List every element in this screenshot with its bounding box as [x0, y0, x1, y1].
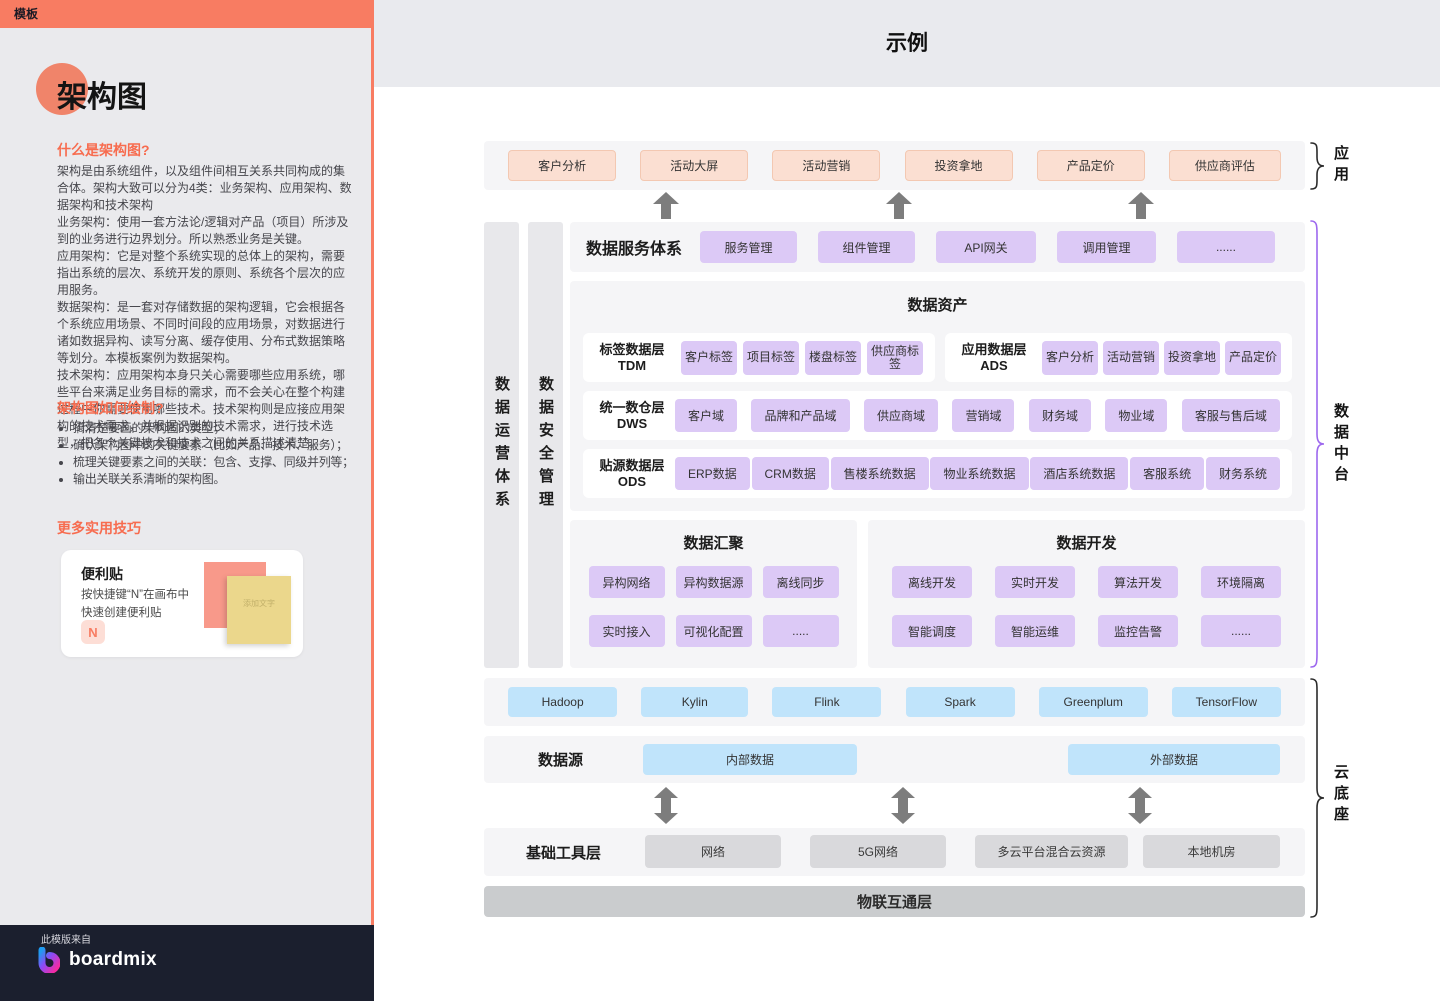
up-arrow[interactable] — [1127, 192, 1155, 219]
what-heading: 什么是架构图? — [57, 140, 150, 160]
sticky-note-yellow[interactable]: 添加文字 — [227, 576, 291, 644]
dws-box[interactable]: 营销域 — [952, 399, 1014, 432]
ads-layer-code: ADS — [951, 358, 1037, 374]
tips-heading: 更多实用技巧 — [57, 518, 141, 538]
how-bullet: 梳理关键要素之间的关联：包含、支撑、同级并列等； — [73, 454, 383, 471]
data-source-panel: 数据源 内部数据 外部数据 — [484, 736, 1305, 783]
ods-box[interactable]: 客服系统 — [1130, 457, 1204, 490]
data-security-bar[interactable]: 数据安全管理 — [528, 222, 563, 668]
infra-box[interactable]: 本地机房 — [1143, 835, 1280, 868]
boardmix-template-page: 模板 架构图 什么是架构图? 架构是由系统组件，以及组件间相互关系共同构成的集合… — [0, 0, 1440, 1001]
data-converge-title: 数据汇聚 — [570, 520, 857, 553]
how-bullet: 输出关联关系清晰的架构图。 — [73, 471, 383, 488]
dws-box[interactable]: 供应商域 — [864, 399, 938, 432]
how-bullet: 搞清楚要画的架构图的类型； — [73, 420, 383, 437]
data-source-label: 数据源 — [538, 736, 583, 783]
ads-box[interactable]: 活动营销 — [1103, 341, 1159, 375]
infra-box[interactable]: 5G网络 — [810, 835, 946, 868]
ads-box[interactable]: 产品定价 — [1225, 341, 1281, 375]
infra-box[interactable]: 网络 — [645, 835, 781, 868]
ods-layer-row: 贴源数据层 ODS ERP数据 CRM数据 售楼系统数据 物业系统数据 酒店系统… — [583, 449, 1292, 498]
tech-box[interactable]: Hadoop — [508, 687, 617, 717]
data-security-label: 数据安全管理 — [535, 376, 556, 514]
dws-box[interactable]: 客服与售后域 — [1182, 399, 1280, 432]
sidebar-footer: 此模版来自 boardmix — [0, 925, 374, 1001]
app-box[interactable]: 活动营销 — [772, 150, 880, 181]
develop-box[interactable]: 算法开发 — [1098, 566, 1178, 598]
data-converge-panel: 数据汇聚 异构网络 异构数据源 离线同步 实时接入 可视化配置 ..... — [570, 520, 857, 668]
ads-layer-row: 应用数据层 ADS 客户分析 活动营销 投资拿地 产品定价 — [945, 333, 1292, 382]
internal-data-box[interactable]: 内部数据 — [643, 744, 857, 775]
develop-box[interactable]: 实时开发 — [995, 566, 1075, 598]
data-assets-panel: 数据资产 标签数据层 TDM 客户标签 项目标签 楼盘标签 供应商标签 应用数据… — [570, 281, 1305, 511]
converge-box[interactable]: 可视化配置 — [676, 615, 752, 647]
double-arrow[interactable] — [890, 787, 916, 824]
ads-box[interactable]: 投资拿地 — [1164, 341, 1220, 375]
dws-layer-code: DWS — [589, 416, 675, 432]
ods-box[interactable]: ERP数据 — [675, 457, 750, 490]
develop-box[interactable]: 离线开发 — [892, 566, 972, 598]
data-develop-title: 数据开发 — [868, 520, 1305, 553]
tech-box[interactable]: Kylin — [641, 687, 748, 717]
data-platform-brace-label: 数据中台 — [1330, 403, 1351, 487]
converge-box[interactable]: ..... — [763, 615, 839, 647]
service-box[interactable]: 服务管理 — [700, 231, 797, 263]
infra-box[interactable]: 多云平台混合云资源 — [975, 835, 1128, 868]
tip-card-desc: 按快捷键“N”在画布中 快速创建便利贴 — [81, 586, 211, 622]
double-arrow[interactable] — [653, 787, 679, 824]
app-box[interactable]: 供应商评估 — [1169, 150, 1281, 181]
boardmix-logo-text: boardmix — [69, 949, 157, 971]
app-box[interactable]: 活动大屏 — [640, 150, 748, 181]
canvas-title: 示例 — [374, 0, 1440, 87]
data-service-panel: 数据服务体系 服务管理 组件管理 API网关 调用管理 ...... — [570, 222, 1305, 272]
tdm-layer-code: TDM — [589, 358, 675, 374]
up-arrow[interactable] — [885, 192, 913, 219]
up-arrow[interactable] — [652, 192, 680, 219]
tech-box[interactable]: Flink — [772, 687, 881, 717]
develop-box[interactable]: 智能运维 — [995, 615, 1075, 647]
dws-layer-name: 统一数仓层 — [589, 400, 675, 416]
template-sidebar: 模板 架构图 什么是架构图? 架构是由系统组件，以及组件间相互关系共同构成的集合… — [0, 0, 374, 1001]
tdm-layer-row: 标签数据层 TDM 客户标签 项目标签 楼盘标签 供应商标签 — [583, 333, 935, 382]
how-heading: 架构图如何绘制? — [57, 398, 164, 418]
sticky-note-placeholder: 添加文字 — [243, 598, 275, 644]
dws-layer-label: 统一数仓层 DWS — [589, 400, 675, 432]
app-brace-label: 应用 — [1330, 145, 1351, 187]
ads-layer-name: 应用数据层 — [951, 342, 1037, 358]
data-assets-title: 数据资产 — [570, 281, 1305, 315]
ods-layer-label: 贴源数据层 ODS — [589, 458, 675, 490]
tdm-layer-label: 标签数据层 TDM — [589, 342, 675, 374]
data-operation-bar[interactable]: 数据运营体系 — [484, 222, 519, 668]
ods-box[interactable]: 售楼系统数据 — [831, 457, 929, 490]
dws-box[interactable]: 物业域 — [1105, 399, 1167, 432]
template-source-label: 此模版来自 — [41, 931, 91, 946]
how-bullets: 搞清楚要画的架构图的类型； 确认架构图中的关键要素（比如产品、技术、服务）； 梳… — [57, 420, 383, 488]
dws-box[interactable]: 财务域 — [1029, 399, 1091, 432]
service-box[interactable]: API网关 — [936, 231, 1036, 263]
converge-box[interactable]: 离线同步 — [763, 566, 839, 598]
infra-label: 基础工具层 — [526, 828, 601, 876]
ods-layer-name: 贴源数据层 — [589, 458, 675, 474]
data-develop-panel: 数据开发 离线开发 实时开发 算法开发 环境隔离 智能调度 智能运维 监控告警 … — [868, 520, 1305, 668]
cloud-base-brace — [1309, 678, 1325, 918]
app-brace — [1309, 142, 1325, 190]
ods-box[interactable]: 财务系统 — [1206, 457, 1280, 490]
template-title: 架构图 — [57, 72, 147, 116]
data-platform-brace — [1309, 220, 1325, 668]
tdm-box[interactable]: 项目标签 — [743, 341, 799, 375]
develop-box[interactable]: ...... — [1201, 615, 1281, 647]
tdm-box[interactable]: 供应商标签 — [867, 341, 923, 375]
converge-box[interactable]: 异构网络 — [589, 566, 665, 598]
infra-panel: 基础工具层 网络 5G网络 多云平台混合云资源 本地机房 — [484, 828, 1305, 876]
tech-row-panel: Hadoop Kylin Flink Spark Greenplum Tenso… — [484, 678, 1305, 726]
app-box[interactable]: 客户分析 — [508, 150, 616, 181]
tech-box[interactable]: Spark — [906, 687, 1015, 717]
data-operation-label: 数据运营体系 — [491, 376, 512, 514]
converge-box[interactable]: 异构数据源 — [676, 566, 752, 598]
tech-box[interactable]: Greenplum — [1039, 687, 1148, 717]
sticky-note-tip-card: 便利贴 按快捷键“N”在画布中 快速创建便利贴 N 添加文字 — [61, 550, 303, 657]
tdm-box[interactable]: 楼盘标签 — [805, 341, 861, 375]
ods-layer-code: ODS — [589, 474, 675, 490]
service-box[interactable]: 调用管理 — [1057, 231, 1156, 263]
template-badge: 模板 — [0, 0, 374, 28]
tdm-layer-name: 标签数据层 — [589, 342, 675, 358]
ods-box[interactable]: 酒店系统数据 — [1030, 457, 1128, 490]
boardmix-logo-icon — [38, 947, 60, 973]
dws-box[interactable]: 品牌和产品域 — [751, 399, 849, 432]
develop-box[interactable]: 智能调度 — [892, 615, 972, 647]
double-arrow[interactable] — [1127, 787, 1153, 824]
app-box[interactable]: 投资拿地 — [905, 150, 1013, 181]
converge-box[interactable]: 实时接入 — [589, 615, 665, 647]
ods-box[interactable]: 物业系统数据 — [930, 457, 1028, 490]
sidebar-accent-border — [371, 0, 374, 925]
boardmix-logo: boardmix — [38, 947, 157, 973]
dws-box[interactable]: 客户域 — [675, 399, 737, 432]
app-layer-panel: 客户分析 活动大屏 活动营销 投资拿地 产品定价 供应商评估 — [484, 141, 1305, 190]
how-bullet: 确认架构图中的关键要素（比如产品、技术、服务）； — [73, 437, 383, 454]
develop-box[interactable]: 监控告警 — [1098, 615, 1178, 647]
data-service-label: 数据服务体系 — [586, 235, 682, 259]
external-data-box[interactable]: 外部数据 — [1068, 744, 1280, 775]
ads-layer-label: 应用数据层 ADS — [951, 342, 1037, 374]
app-box[interactable]: 产品定价 — [1037, 150, 1145, 181]
develop-box[interactable]: 环境隔离 — [1201, 566, 1281, 598]
tdm-box[interactable]: 客户标签 — [681, 341, 737, 375]
dws-layer-row: 统一数仓层 DWS 客户域 品牌和产品域 供应商域 营销域 财务域 物业域 客服… — [583, 391, 1292, 440]
shortcut-key-badge: N — [81, 620, 105, 644]
iot-layer-bar[interactable]: 物联互通层 — [484, 886, 1305, 917]
ods-box[interactable]: CRM数据 — [752, 457, 829, 490]
ads-box[interactable]: 客户分析 — [1042, 341, 1098, 375]
tech-box[interactable]: TensorFlow — [1172, 687, 1281, 717]
cloud-base-brace-label: 云底座 — [1330, 764, 1351, 827]
service-box[interactable]: ...... — [1177, 231, 1275, 263]
service-box[interactable]: 组件管理 — [818, 231, 915, 263]
tip-card-title: 便利贴 — [81, 564, 123, 584]
